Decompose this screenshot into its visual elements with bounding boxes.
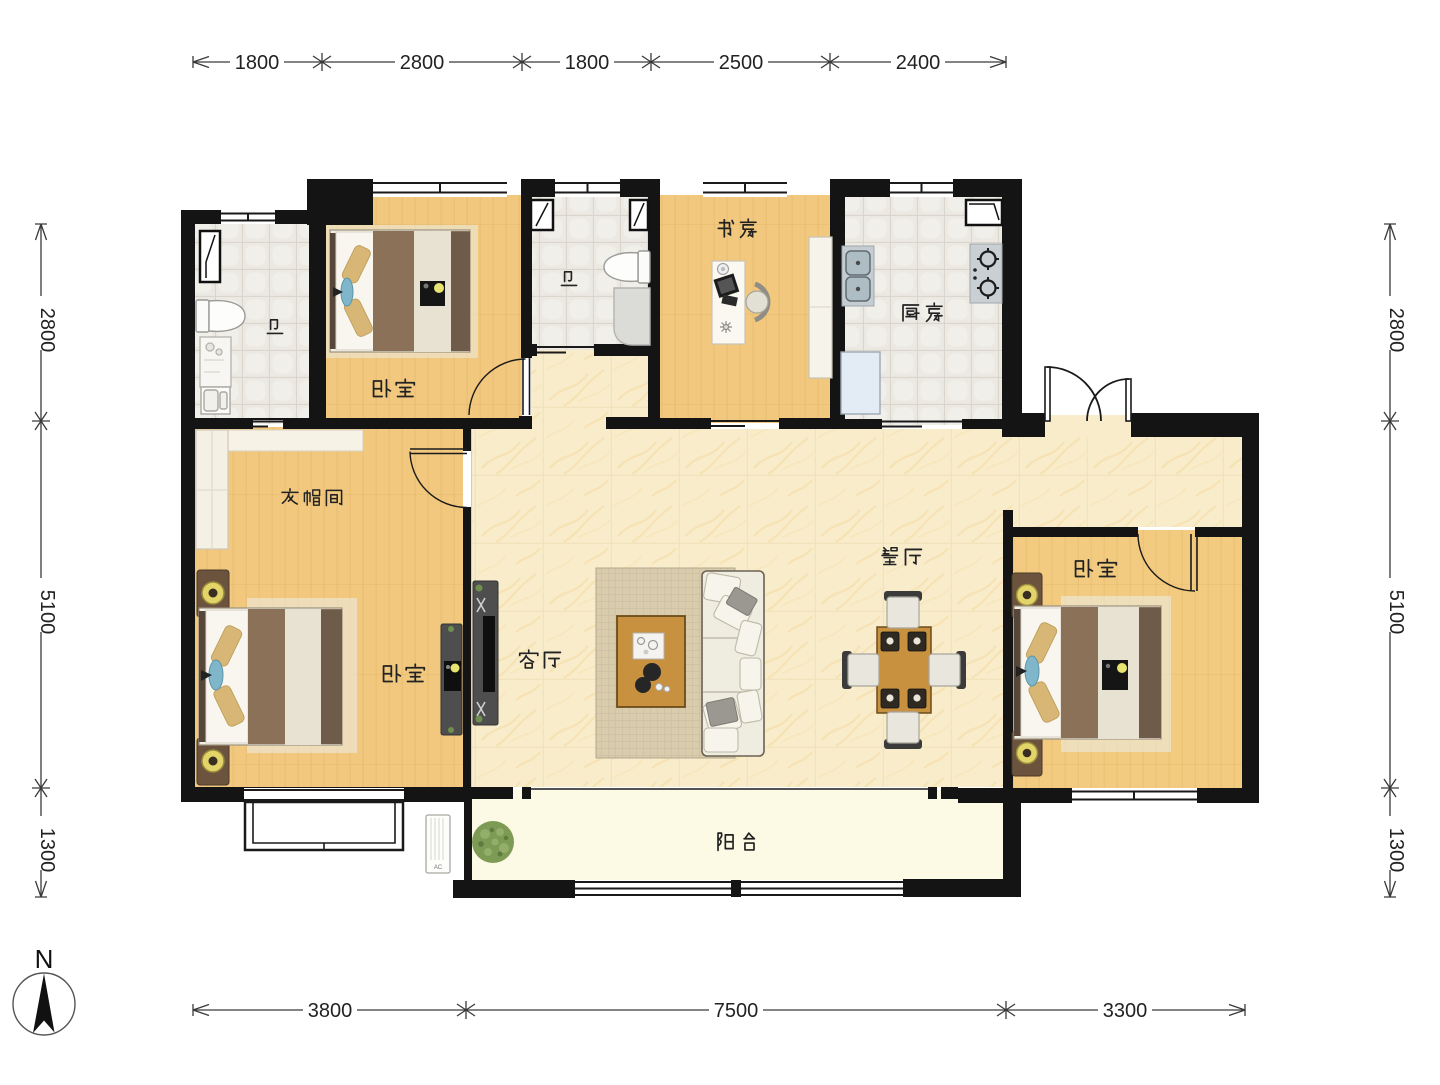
- svg-text:1800: 1800: [565, 52, 610, 74]
- svg-text:2800: 2800: [1385, 308, 1407, 353]
- svg-text:3300: 3300: [1103, 1000, 1148, 1022]
- svg-text:1300: 1300: [36, 828, 58, 873]
- svg-text:1300: 1300: [1385, 828, 1407, 873]
- svg-text:2800: 2800: [400, 52, 445, 74]
- svg-text:7500: 7500: [714, 1000, 759, 1022]
- svg-text:5100: 5100: [1385, 590, 1407, 635]
- svg-text:3800: 3800: [308, 1000, 353, 1022]
- svg-text:5100: 5100: [36, 590, 58, 635]
- svg-text:AC: AC: [434, 865, 443, 871]
- svg-text:2500: 2500: [719, 52, 764, 74]
- svg-text:N: N: [35, 944, 54, 974]
- svg-text:2400: 2400: [896, 52, 941, 74]
- svg-text:2800: 2800: [36, 308, 58, 353]
- svg-text:1800: 1800: [235, 52, 280, 74]
